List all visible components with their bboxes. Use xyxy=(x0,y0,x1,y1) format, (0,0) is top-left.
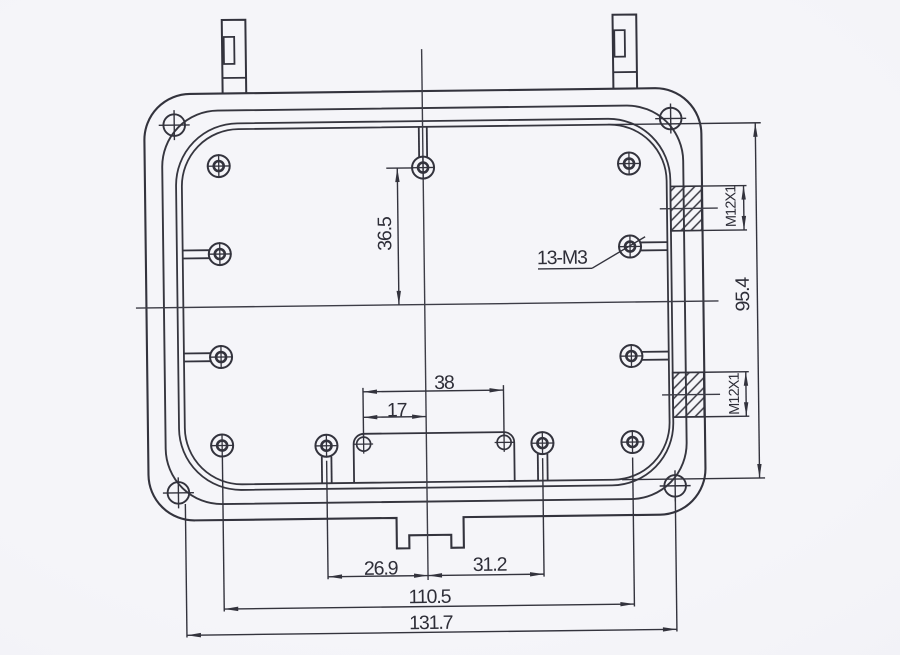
svg-text:M12X1: M12X1 xyxy=(723,185,740,227)
svg-text:26.9: 26.9 xyxy=(364,557,398,579)
svg-text:38: 38 xyxy=(434,372,454,394)
svg-text:131.7: 131.7 xyxy=(409,612,453,635)
svg-text:31.2: 31.2 xyxy=(473,554,507,576)
svg-text:110.5: 110.5 xyxy=(408,586,451,609)
svg-text:36.5: 36.5 xyxy=(374,216,396,251)
svg-text:M12X1: M12X1 xyxy=(727,372,744,414)
svg-text:95.4: 95.4 xyxy=(732,277,754,312)
svg-text:17: 17 xyxy=(387,399,407,421)
svg-text:13-M3: 13-M3 xyxy=(537,247,587,270)
